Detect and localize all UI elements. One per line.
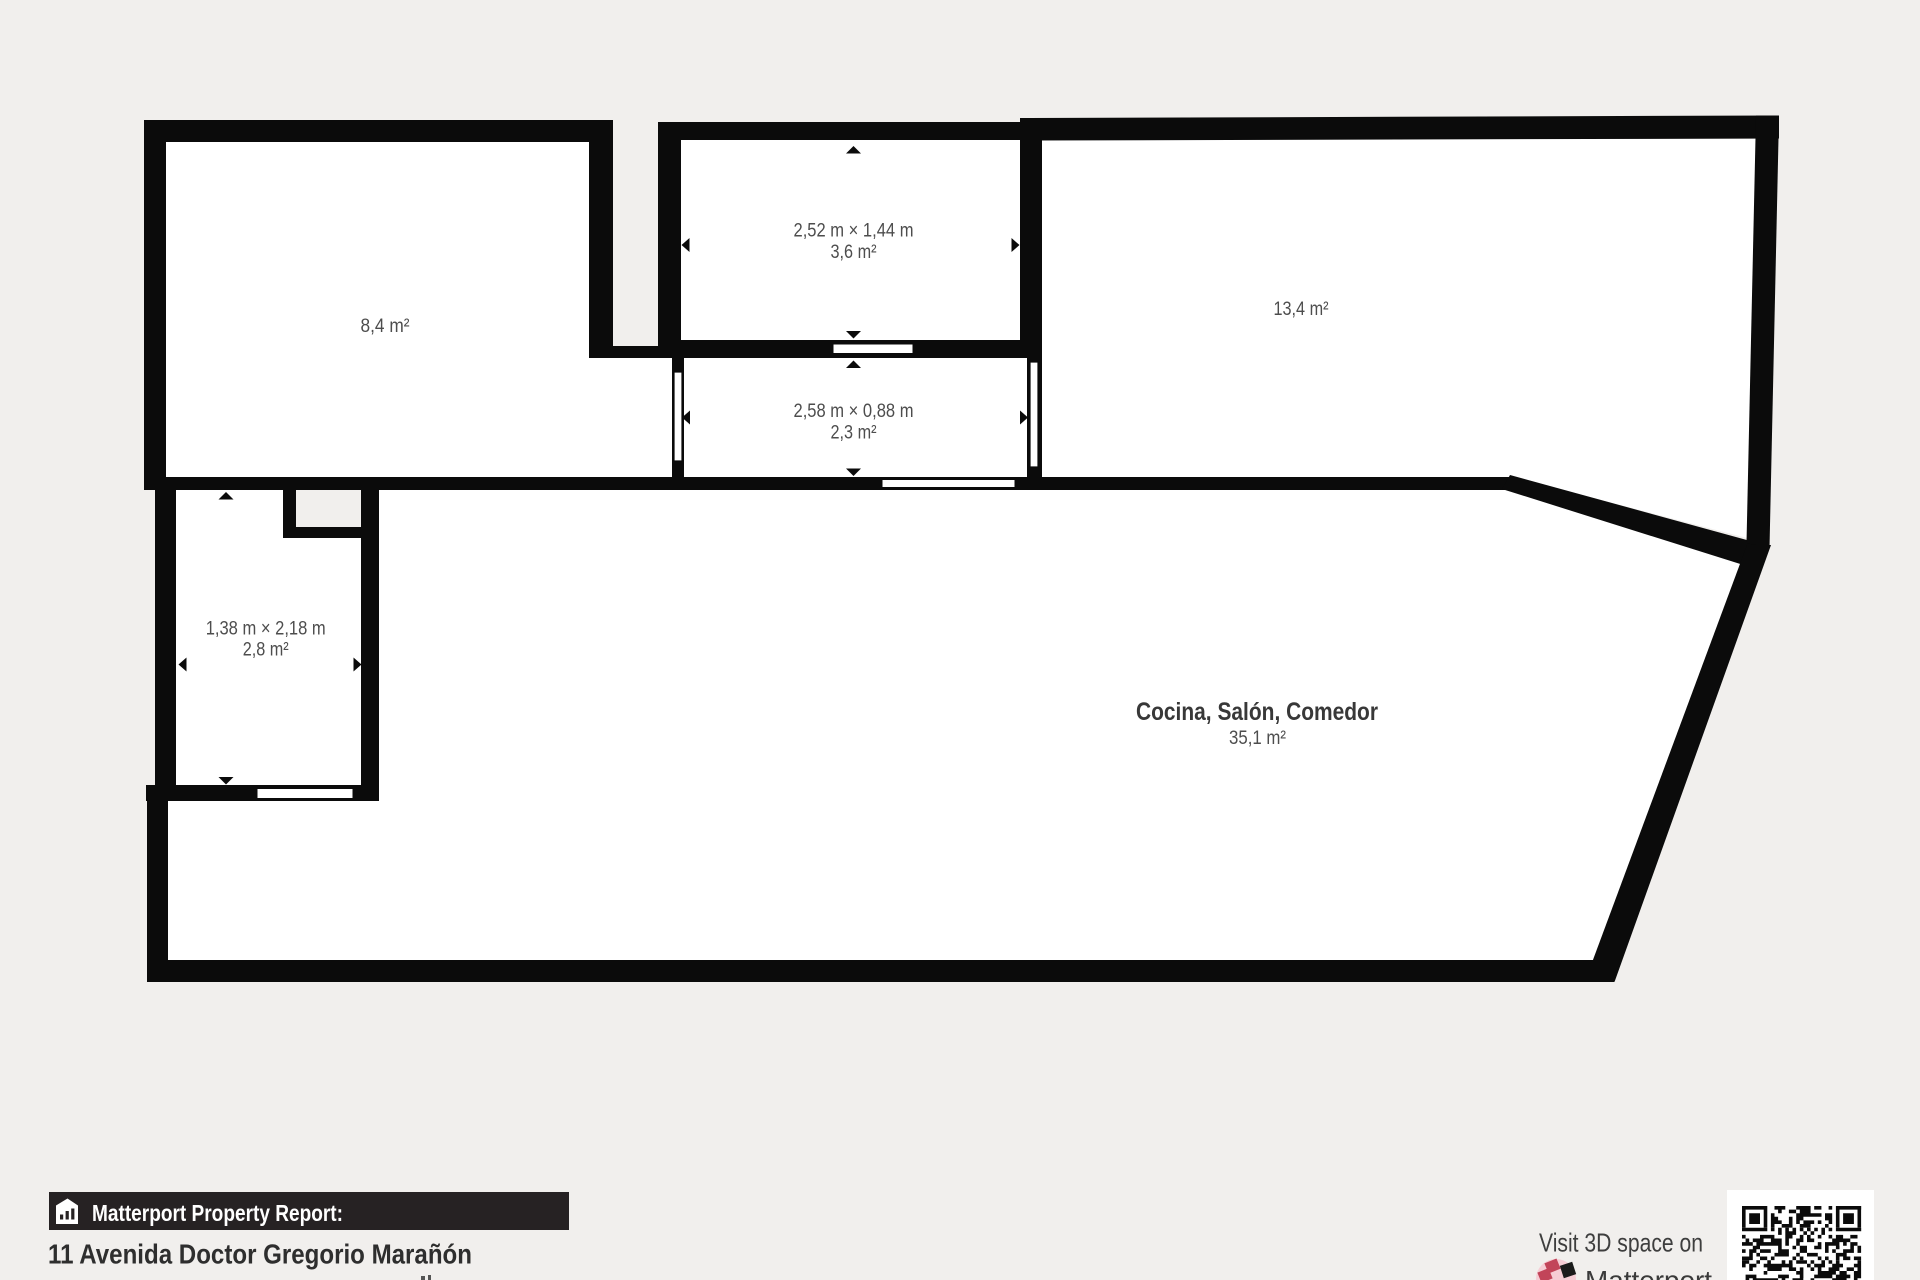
svg-text:2,3 m²: 2,3 m² xyxy=(831,423,877,444)
svg-text:1,38 m × 2,18 m: 1,38 m × 2,18 m xyxy=(206,618,326,639)
svg-text:35,1 m²: 35,1 m² xyxy=(1229,728,1286,749)
svg-text:2,52 m × 1,44 m: 2,52 m × 1,44 m xyxy=(794,221,914,242)
svg-text:Matterport Property Report:: Matterport Property Report: xyxy=(92,1200,343,1226)
svg-text:Visit 3D space on: Visit 3D space on xyxy=(1539,1228,1703,1258)
svg-text:Cocina, Salón, Comedor: Cocina, Salón, Comedor xyxy=(1136,698,1378,726)
svg-text:Matterport: Matterport xyxy=(1585,1265,1712,1280)
svg-text:13,4 m²: 13,4 m² xyxy=(1274,299,1329,320)
svg-text:8,4 m²: 8,4 m² xyxy=(361,316,410,337)
svg-text:2,58 m × 0,88 m: 2,58 m × 0,88 m xyxy=(794,401,914,422)
svg-text:11 Avenida Doctor Gregorio Mar: 11 Avenida Doctor Gregorio Marañón xyxy=(48,1239,472,1270)
svg-text:3,6 m²: 3,6 m² xyxy=(831,242,877,263)
svg-text:2,8 m²: 2,8 m² xyxy=(243,639,289,660)
